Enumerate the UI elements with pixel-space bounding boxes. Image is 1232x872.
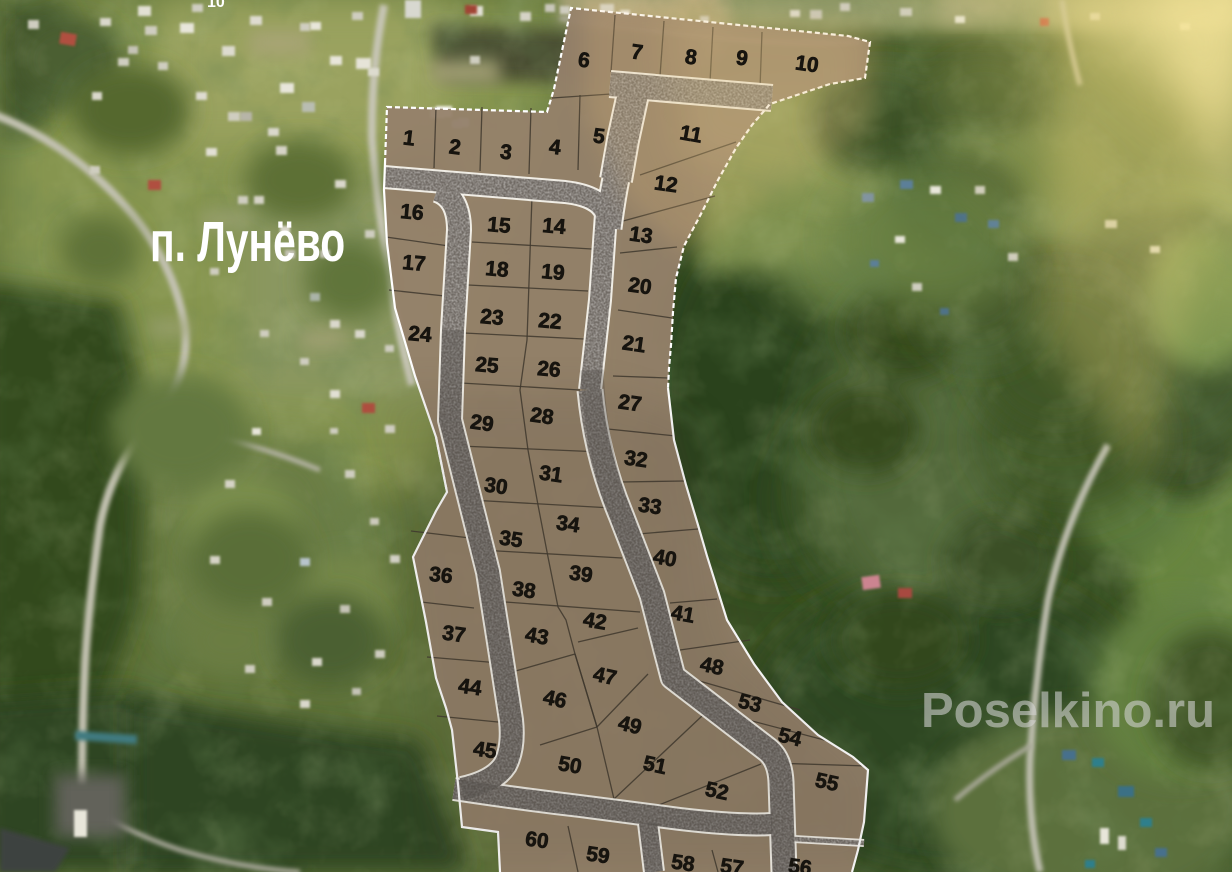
svg-text:58: 58: [670, 850, 697, 872]
svg-text:27: 27: [617, 390, 643, 416]
svg-text:59: 59: [585, 842, 611, 868]
svg-text:10: 10: [207, 0, 225, 11]
svg-text:46: 46: [541, 686, 569, 713]
svg-text:32: 32: [623, 446, 649, 472]
svg-text:10: 10: [794, 51, 820, 77]
svg-text:38: 38: [511, 577, 538, 603]
svg-text:29: 29: [469, 410, 495, 436]
svg-text:34: 34: [555, 511, 582, 537]
svg-text:26: 26: [536, 357, 561, 382]
svg-text:Poselkino.ru: Poselkino.ru: [921, 684, 1215, 738]
svg-text:21: 21: [621, 331, 648, 357]
svg-text:25: 25: [474, 353, 500, 378]
svg-text:30: 30: [483, 473, 509, 499]
svg-text:20: 20: [627, 273, 653, 299]
svg-text:19: 19: [540, 260, 565, 285]
svg-text:50: 50: [556, 752, 583, 779]
svg-text:45: 45: [472, 737, 499, 763]
svg-text:43: 43: [523, 623, 550, 650]
svg-text:31: 31: [538, 461, 565, 487]
svg-text:52: 52: [703, 778, 731, 805]
svg-text:36: 36: [428, 563, 454, 588]
svg-text:56: 56: [787, 854, 813, 872]
svg-text:13: 13: [628, 222, 654, 248]
svg-text:28: 28: [529, 403, 556, 429]
svg-text:11: 11: [678, 121, 704, 148]
svg-text:44: 44: [457, 674, 484, 700]
svg-text:14: 14: [541, 214, 567, 239]
svg-text:40: 40: [651, 545, 678, 572]
svg-text:12: 12: [653, 171, 679, 197]
svg-text:33: 33: [637, 493, 663, 519]
svg-text:17: 17: [401, 251, 426, 276]
svg-text:24: 24: [407, 322, 433, 347]
svg-text:п. Лунёво: п. Лунёво: [150, 210, 345, 273]
svg-text:41: 41: [669, 601, 696, 628]
svg-text:15: 15: [486, 213, 512, 238]
svg-text:39: 39: [568, 561, 594, 587]
svg-text:47: 47: [591, 663, 619, 690]
svg-text:35: 35: [498, 526, 525, 552]
svg-text:16: 16: [399, 200, 424, 225]
svg-text:60: 60: [524, 827, 550, 853]
svg-text:18: 18: [484, 257, 510, 282]
svg-text:23: 23: [479, 305, 504, 330]
svg-text:37: 37: [441, 621, 467, 647]
svg-text:57: 57: [719, 854, 745, 872]
svg-text:42: 42: [581, 608, 608, 635]
svg-text:22: 22: [537, 309, 562, 334]
